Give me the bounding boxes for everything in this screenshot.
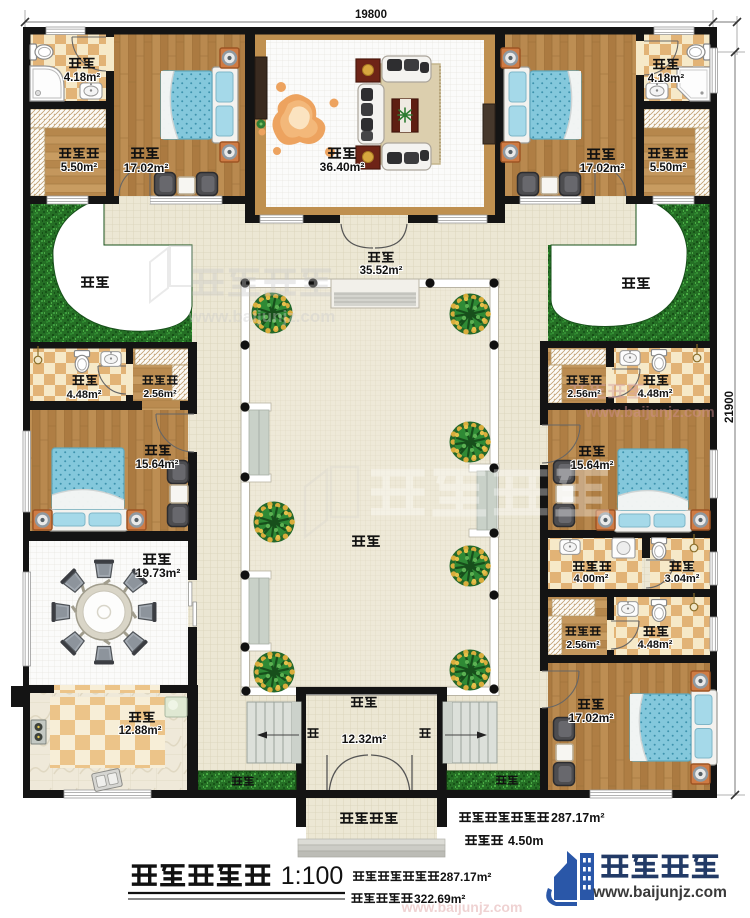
svg-text:1:100: 1:100 xyxy=(281,862,344,890)
svg-text:4.18m²: 4.18m² xyxy=(64,72,101,84)
svg-text:2.56m²: 2.56m² xyxy=(566,639,600,651)
svg-text:4.48m²: 4.48m² xyxy=(67,389,102,401)
svg-text:21900: 21900 xyxy=(724,391,736,423)
svg-text:4.18m²: 4.18m² xyxy=(648,73,685,85)
svg-text:287.17m²: 287.17m² xyxy=(551,811,605,825)
svg-text:4.48m²: 4.48m² xyxy=(638,639,673,651)
svg-text:35.52m²: 35.52m² xyxy=(360,265,403,277)
svg-text:17.02m²: 17.02m² xyxy=(580,161,625,175)
svg-text:15.64m²: 15.64m² xyxy=(571,460,614,472)
svg-text:19800: 19800 xyxy=(355,9,387,21)
svg-text:12.32m²: 12.32m² xyxy=(342,732,387,746)
svg-text:36.40m²: 36.40m² xyxy=(320,160,365,174)
svg-text:322.69m²: 322.69m² xyxy=(414,892,465,906)
svg-text:www.baijunjz.com: www.baijunjz.com xyxy=(188,307,336,326)
svg-text:17.02m²: 17.02m² xyxy=(124,161,169,175)
svg-text:4.00m²: 4.00m² xyxy=(574,573,609,585)
svg-text:5.50m²: 5.50m² xyxy=(650,162,687,174)
svg-text:4.50m: 4.50m xyxy=(508,834,543,848)
svg-text:15.64m²: 15.64m² xyxy=(136,459,179,471)
svg-text:4.48m²: 4.48m² xyxy=(638,388,673,400)
svg-text:5.50m²: 5.50m² xyxy=(61,162,98,174)
svg-text:2.56m²: 2.56m² xyxy=(567,388,601,400)
svg-text:19.73m²: 19.73m² xyxy=(136,566,181,580)
svg-text:287.17m²: 287.17m² xyxy=(440,870,491,884)
svg-text:2.56m²: 2.56m² xyxy=(143,388,177,400)
svg-text:www.baijunjz.com: www.baijunjz.com xyxy=(592,884,727,901)
svg-text:www.baijunjz.com: www.baijunjz.com xyxy=(584,404,714,421)
svg-text:3.04m²: 3.04m² xyxy=(665,573,700,585)
svg-text:17.02m²: 17.02m² xyxy=(569,711,614,725)
svg-text:12.88m²: 12.88m² xyxy=(119,725,162,737)
